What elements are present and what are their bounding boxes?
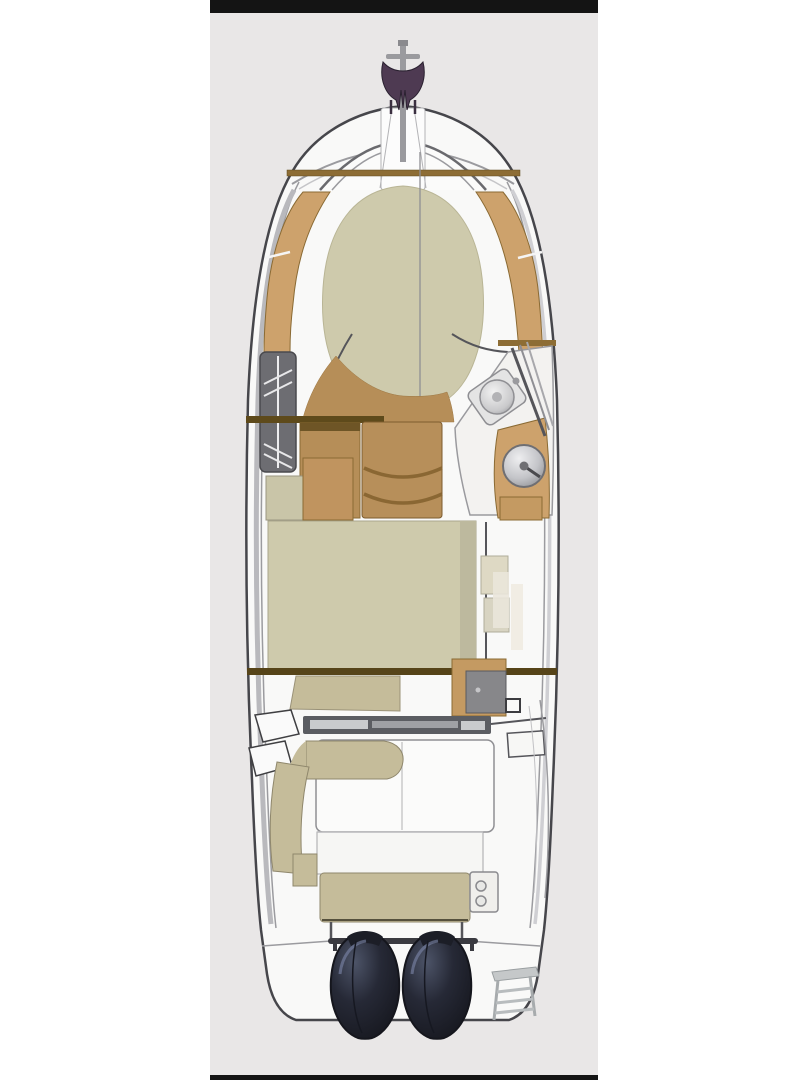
cockpit-cushions-lower — [317, 832, 483, 874]
foredeck-rail — [287, 170, 520, 176]
cupholder-2 — [476, 896, 486, 906]
transom-rail-hanger-left — [333, 938, 337, 951]
berth-shadow-edge — [460, 521, 476, 672]
steering-wheel — [503, 445, 545, 487]
wheel-hub — [520, 462, 529, 471]
sink-drain — [492, 392, 502, 402]
boat-deck-plan — [0, 0, 810, 1080]
head-compartment-hatch — [260, 352, 296, 472]
anchor-pole-cap — [398, 40, 408, 46]
anchor-crossbar — [386, 54, 420, 59]
cockpit-l-seat-top — [306, 741, 403, 779]
sink-faucet — [513, 378, 520, 385]
sunlounge-panel — [290, 676, 400, 711]
mid-cabin-berth — [268, 521, 476, 672]
door-track-segment-3 — [461, 721, 485, 730]
cupholder-1 — [476, 881, 486, 891]
wet-bar-knob — [476, 688, 481, 693]
aft-bench — [320, 873, 470, 922]
cabin-sideboard — [500, 497, 542, 520]
salon-cabinet-top-edge — [300, 423, 360, 431]
door-track-segment-1 — [310, 720, 368, 729]
window-reflection-1 — [493, 572, 509, 628]
side-boarding-step — [507, 731, 545, 757]
starboard-engine — [403, 931, 471, 1039]
cabin-cabinet — [303, 458, 353, 520]
transom-rail-hanger-right — [470, 938, 474, 951]
cupholder-module — [470, 872, 498, 912]
port-engine — [331, 931, 399, 1039]
aft-bench-side-pad — [293, 854, 317, 886]
bottom-black-bar — [210, 1075, 598, 1080]
aft-bulkhead-bar — [247, 668, 557, 675]
window-reflection-2 — [511, 584, 523, 650]
door-track-segment-2 — [372, 721, 458, 728]
wet-bar-top — [466, 671, 506, 713]
